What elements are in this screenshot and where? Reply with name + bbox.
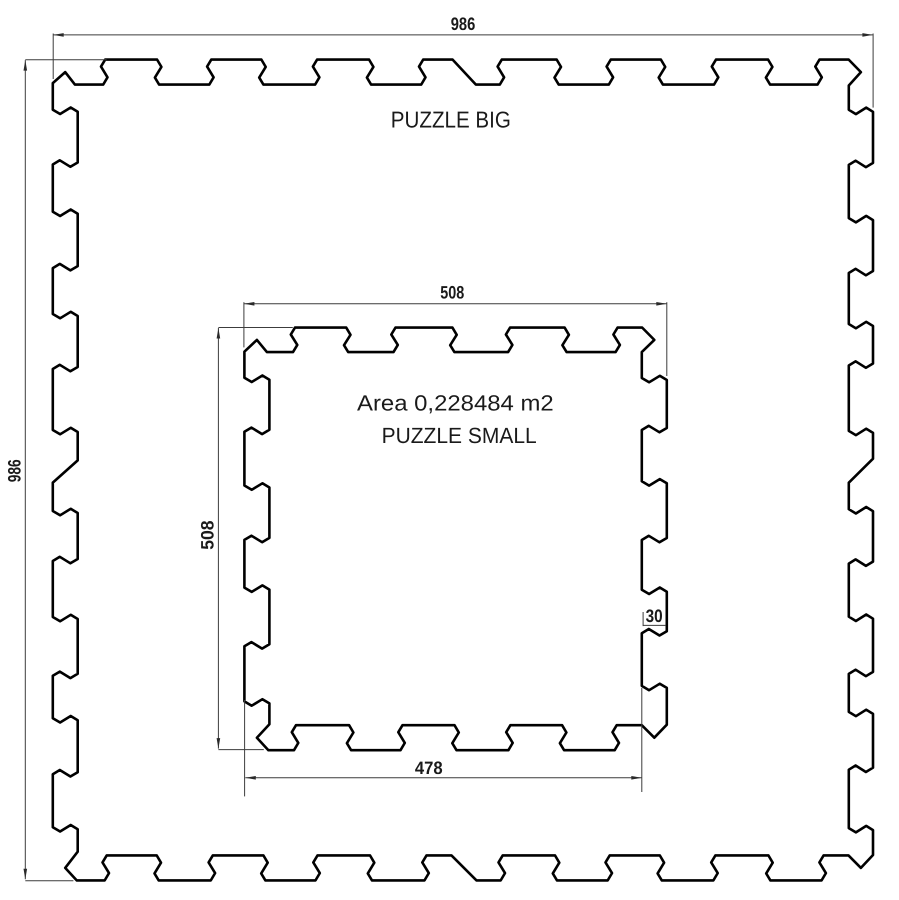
svg-text:PUZZLE BIG: PUZZLE BIG xyxy=(391,106,511,132)
svg-text:508: 508 xyxy=(440,283,464,303)
svg-text:PUZZLE SMALL: PUZZLE SMALL xyxy=(382,423,537,448)
svg-text:478: 478 xyxy=(415,758,443,778)
svg-text:986: 986 xyxy=(5,459,25,482)
svg-text:508: 508 xyxy=(198,520,218,549)
svg-text:Area 0,228484 m2: Area 0,228484 m2 xyxy=(357,391,554,416)
svg-text:30: 30 xyxy=(646,606,663,626)
svg-text:986: 986 xyxy=(451,14,476,34)
